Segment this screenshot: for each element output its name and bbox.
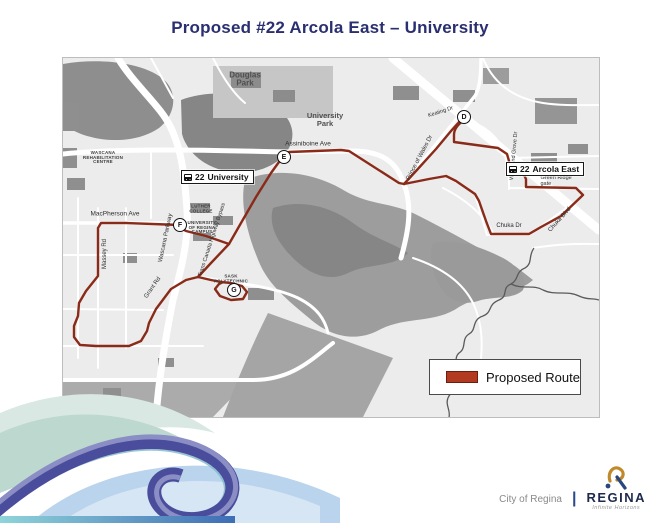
map-label-12: Keating Dr <box>428 106 455 120</box>
page-title: Proposed #22 Arcola East – University <box>0 18 660 38</box>
stop-marker-f: F <box>173 218 187 232</box>
footer-divider: | <box>572 490 576 511</box>
bus-icon <box>509 166 517 173</box>
map-label-8: WASCANA REHABILITATION CENTRE <box>83 151 123 165</box>
stop-marker-d: D <box>457 110 471 124</box>
map-label-2: Assiniboine Ave <box>285 142 331 149</box>
map-label-13: Prince of Wales Dr <box>406 135 435 182</box>
route-color-swatch <box>446 371 478 383</box>
slide: Proposed #22 Arcola East – University <box>0 0 660 523</box>
map-label-6: Trans Canada Highway Bypass <box>198 203 227 278</box>
legend-label: Proposed Route <box>486 370 580 385</box>
footer-branding: City of Regina | REGINA Infinite Horizon… <box>499 464 646 511</box>
city-of-regina-label: City of Regina <box>499 494 562 511</box>
map-label-17: Chuka Dr <box>496 223 521 229</box>
legend: Proposed Route <box>429 359 581 395</box>
regina-wordmark: REGINA <box>586 490 646 505</box>
route-map: Douglas ParkUniversity ParkAssiniboine A… <box>62 57 600 418</box>
map-label-3: MacPherson Ave <box>90 212 139 219</box>
route-badge-arcola-east: 22Arcola East <box>506 162 584 176</box>
wave-decoration <box>0 388 340 523</box>
map-label-16: Chuka Blvd <box>547 206 572 233</box>
map-label-7: Grant Rd <box>143 276 162 300</box>
map-label-10: UNIVERSITY OF REGINA CAMPUS <box>187 221 216 235</box>
bus-icon <box>184 174 192 181</box>
map-label-5: Wascana Parkway <box>158 213 174 263</box>
route-badge-label: University <box>207 172 248 182</box>
regina-tagline: Infinite Horizons <box>592 505 640 511</box>
route-number: 22 <box>195 172 204 182</box>
stop-marker-e: E <box>277 150 291 164</box>
map-label-9: LUTHER COLLEGE <box>189 204 212 213</box>
stop-marker-g: G <box>227 283 241 297</box>
map-label-0: Douglas Park <box>229 72 261 89</box>
route-number: 22 <box>520 164 529 174</box>
regina-r-icon <box>604 464 628 490</box>
regina-logo: REGINA Infinite Horizons <box>586 464 646 511</box>
route-badge-university: 22University <box>181 170 254 184</box>
route-badge-label: Arcola East <box>532 164 579 174</box>
map-label-15: Green Ridge gate <box>541 176 580 188</box>
map-label-4: Massey Rd <box>102 239 108 269</box>
map-label-1: University Park <box>307 112 343 128</box>
